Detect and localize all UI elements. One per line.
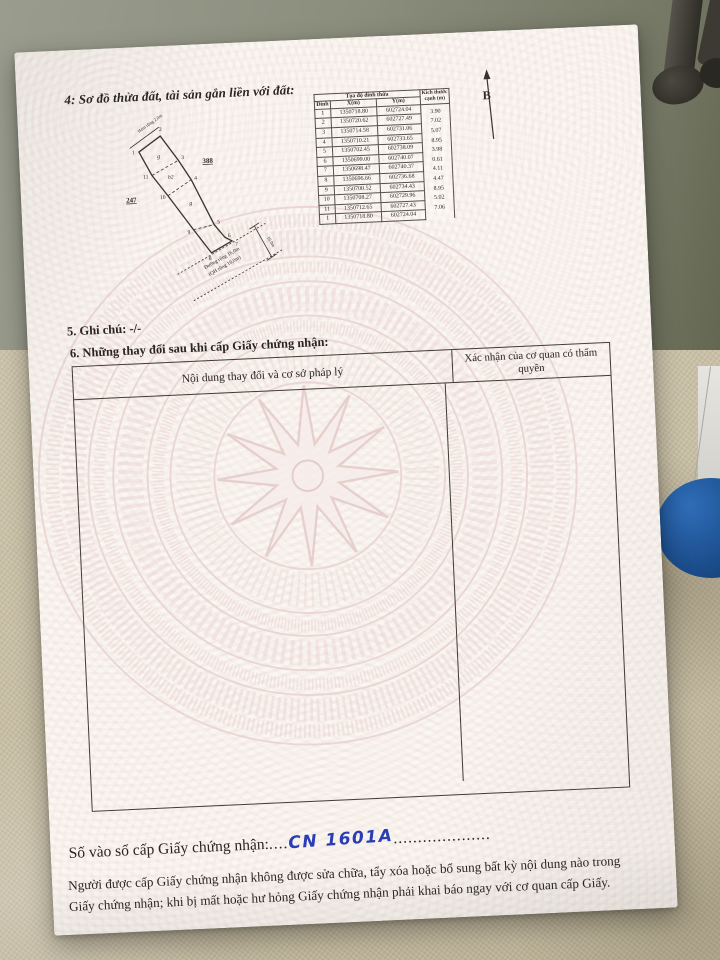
registry-dots-before: .... xyxy=(268,835,288,853)
svg-text:5: 5 xyxy=(217,219,220,225)
svg-text:9: 9 xyxy=(187,230,190,236)
svg-text:8: 8 xyxy=(209,256,212,262)
north-arrowhead xyxy=(483,69,490,79)
parcel-diagram: Hẻm rộng 2,0m Đường rộng 16,0m (QH rộng … xyxy=(52,92,331,319)
north-arrow: B xyxy=(473,64,513,146)
svg-text:7: 7 xyxy=(235,242,238,248)
section-label-low: g xyxy=(189,201,192,207)
svg-text:2: 2 xyxy=(159,127,162,133)
registry-dots-after: .................... xyxy=(393,826,491,847)
parcel-388: 388 xyxy=(202,157,213,165)
svg-text:4: 4 xyxy=(194,175,197,181)
coord-y: 602724.04 xyxy=(381,210,425,222)
section-label-top: g xyxy=(157,154,160,160)
photo-scene: 4: Sơ đồ thửa đất, tài sản gắn liền với … xyxy=(0,0,720,960)
svg-text:6: 6 xyxy=(228,233,231,239)
road-dimension-label: 16.0m xyxy=(266,235,276,248)
north-label: B xyxy=(482,88,491,102)
coordinate-table: Tọa độ đỉnh thửa Kích thước cạnh (m) Đỉn… xyxy=(313,88,455,225)
svg-text:3: 3 xyxy=(181,155,184,161)
coord-col-vertex: Đỉnh xyxy=(314,101,330,109)
svg-text:10: 10 xyxy=(160,195,166,201)
svg-text:1: 1 xyxy=(132,150,135,156)
changes-table-body xyxy=(74,376,629,798)
coord-col-size: Kích thước cạnh (m) xyxy=(420,88,450,104)
svg-text:11: 11 xyxy=(143,175,149,181)
vertex-labels: 1 2 3 4 5 6 7 8 9 10 11 xyxy=(131,124,239,265)
registry-handwritten-number: CN 1601A xyxy=(288,826,394,853)
vertex-id: 1 xyxy=(319,214,335,224)
changes-table: Nội dung thay đổi và cơ sở pháp lý Xác n… xyxy=(72,342,631,812)
parcel-outline xyxy=(138,133,232,256)
certificate-page: 4: Sơ đồ thửa đất, tài sản gắn liền với … xyxy=(14,24,677,935)
tile-wall xyxy=(698,366,720,482)
parcel-247: 247 xyxy=(126,196,137,204)
section-label-mid: b2 xyxy=(168,175,174,181)
coord-x: 1350718.80 xyxy=(335,212,381,224)
changes-table-divider xyxy=(444,383,463,781)
registry-label: Số vào sổ cấp Giấy chứng nhận: xyxy=(68,836,269,862)
